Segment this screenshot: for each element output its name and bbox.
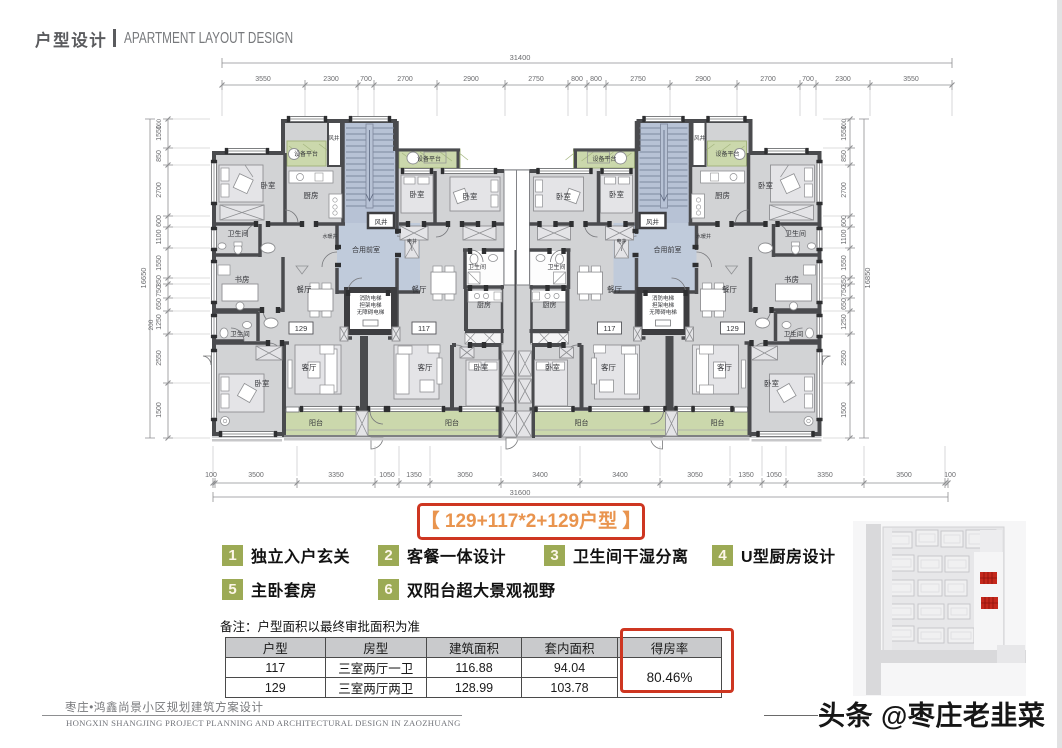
svg-text:卧室: 卧室 bbox=[255, 378, 270, 388]
svg-text:水暖井: 水暖井 bbox=[322, 233, 337, 240]
svg-text:700: 700 bbox=[802, 76, 814, 83]
svg-text:3400: 3400 bbox=[612, 472, 628, 479]
svg-text:1050: 1050 bbox=[379, 472, 395, 479]
svg-text:厨房: 厨房 bbox=[304, 190, 319, 200]
svg-text:1250: 1250 bbox=[156, 314, 163, 330]
svg-text:无障碍电梯: 无障碍电梯 bbox=[649, 308, 677, 316]
svg-text:117: 117 bbox=[604, 324, 616, 333]
svg-text:1500: 1500 bbox=[156, 402, 163, 418]
svg-text:卧室: 卧室 bbox=[758, 180, 773, 190]
svg-text:650: 650 bbox=[156, 298, 163, 310]
svg-text:2900: 2900 bbox=[463, 76, 479, 83]
svg-text:31600: 31600 bbox=[510, 488, 531, 497]
svg-text:800: 800 bbox=[571, 76, 583, 83]
svg-text:风井: 风井 bbox=[328, 134, 340, 142]
svg-text:100: 100 bbox=[842, 118, 848, 129]
svg-text:客厅: 客厅 bbox=[601, 362, 616, 372]
svg-text:600: 600 bbox=[841, 215, 848, 227]
svg-text:客厅: 客厅 bbox=[717, 362, 732, 372]
svg-text:2550: 2550 bbox=[841, 350, 848, 366]
svg-text:担架电梯: 担架电梯 bbox=[652, 301, 675, 309]
svg-text:117: 117 bbox=[418, 324, 430, 333]
svg-text:厨房: 厨房 bbox=[477, 300, 491, 309]
svg-text:3550: 3550 bbox=[903, 76, 919, 83]
svg-text:卧室: 卧室 bbox=[764, 378, 779, 388]
svg-text:1050: 1050 bbox=[766, 472, 782, 479]
svg-text:卧室: 卧室 bbox=[609, 189, 624, 199]
svg-text:850: 850 bbox=[841, 150, 848, 162]
svg-text:卧室: 卧室 bbox=[261, 180, 276, 190]
svg-text:3500: 3500 bbox=[248, 472, 264, 479]
svg-text:2700: 2700 bbox=[397, 76, 413, 83]
svg-text:设备平台: 设备平台 bbox=[715, 150, 739, 158]
svg-text:阳台: 阳台 bbox=[445, 418, 459, 427]
svg-text:750: 750 bbox=[841, 285, 848, 297]
svg-text:合用前室: 合用前室 bbox=[654, 245, 682, 254]
svg-text:1100: 1100 bbox=[841, 229, 848, 244]
svg-text:卫生间: 卫生间 bbox=[784, 329, 804, 338]
svg-text:卫生间: 卫生间 bbox=[468, 263, 486, 271]
svg-text:卫生间: 卫生间 bbox=[547, 263, 565, 271]
svg-text:2700: 2700 bbox=[841, 182, 848, 198]
svg-text:3500: 3500 bbox=[896, 472, 912, 479]
svg-text:电井: 电井 bbox=[616, 238, 626, 245]
svg-text:餐厅: 餐厅 bbox=[297, 285, 312, 294]
svg-text:2700: 2700 bbox=[760, 76, 776, 83]
svg-text:1100: 1100 bbox=[156, 229, 163, 244]
svg-text:31400: 31400 bbox=[510, 53, 531, 62]
svg-text:客厅: 客厅 bbox=[302, 362, 317, 372]
svg-text:129: 129 bbox=[726, 324, 739, 333]
svg-text:3400: 3400 bbox=[532, 472, 548, 479]
svg-text:卧室: 卧室 bbox=[545, 362, 560, 372]
svg-text:卧室: 卧室 bbox=[556, 191, 571, 201]
svg-text:1550: 1550 bbox=[841, 255, 848, 271]
svg-text:合用前室: 合用前室 bbox=[352, 245, 380, 254]
svg-text:800: 800 bbox=[590, 76, 602, 83]
svg-text:厨房: 厨房 bbox=[543, 300, 557, 309]
svg-text:电井: 电井 bbox=[407, 238, 417, 245]
svg-text:700: 700 bbox=[360, 76, 372, 83]
svg-text:担架电梯: 担架电梯 bbox=[359, 301, 382, 309]
svg-text:16650: 16650 bbox=[139, 268, 148, 289]
svg-text:2300: 2300 bbox=[835, 76, 851, 83]
svg-text:阳台: 阳台 bbox=[309, 418, 323, 427]
svg-text:卫生间: 卫生间 bbox=[228, 229, 249, 238]
svg-text:129: 129 bbox=[295, 324, 308, 333]
svg-text:1350: 1350 bbox=[406, 472, 422, 479]
svg-text:1250: 1250 bbox=[841, 314, 848, 330]
svg-text:750: 750 bbox=[156, 285, 163, 297]
svg-text:风井: 风井 bbox=[646, 217, 660, 226]
svg-text:阳台: 阳台 bbox=[711, 418, 725, 427]
svg-text:600: 600 bbox=[156, 215, 163, 227]
svg-text:2750: 2750 bbox=[528, 76, 544, 83]
svg-text:650: 650 bbox=[841, 298, 848, 310]
svg-text:餐厅: 餐厅 bbox=[607, 285, 622, 294]
svg-text:客厅: 客厅 bbox=[418, 362, 433, 372]
svg-text:餐厅: 餐厅 bbox=[412, 285, 427, 294]
svg-text:350: 350 bbox=[156, 275, 163, 287]
svg-text:1350: 1350 bbox=[738, 472, 754, 479]
svg-text:2900: 2900 bbox=[695, 76, 711, 83]
svg-text:无障碍电梯: 无障碍电梯 bbox=[357, 308, 385, 316]
svg-text:3550: 3550 bbox=[255, 76, 271, 83]
svg-text:风井: 风井 bbox=[694, 134, 706, 142]
svg-text:2700: 2700 bbox=[156, 182, 163, 198]
svg-text:厨房: 厨房 bbox=[715, 190, 730, 200]
svg-text:卧室: 卧室 bbox=[410, 189, 425, 199]
svg-text:3050: 3050 bbox=[687, 472, 703, 479]
svg-text:书房: 书房 bbox=[235, 274, 250, 284]
svg-text:2300: 2300 bbox=[323, 76, 339, 83]
svg-text:书房: 书房 bbox=[784, 274, 799, 284]
svg-text:100: 100 bbox=[944, 472, 956, 479]
svg-text:水暖井: 水暖井 bbox=[696, 233, 711, 240]
svg-text:阳台: 阳台 bbox=[575, 418, 589, 427]
svg-text:卧室: 卧室 bbox=[474, 362, 489, 372]
svg-text:卫生间: 卫生间 bbox=[785, 229, 806, 238]
svg-text:1550: 1550 bbox=[156, 255, 163, 271]
svg-text:2550: 2550 bbox=[156, 350, 163, 366]
svg-text:餐厅: 餐厅 bbox=[722, 285, 737, 294]
svg-text:2750: 2750 bbox=[630, 76, 646, 83]
svg-text:16850: 16850 bbox=[863, 268, 872, 289]
svg-text:3350: 3350 bbox=[817, 472, 833, 479]
svg-text:1500: 1500 bbox=[841, 402, 848, 418]
svg-text:100: 100 bbox=[157, 118, 163, 129]
svg-text:设备平台: 设备平台 bbox=[417, 155, 441, 163]
svg-text:100: 100 bbox=[205, 472, 217, 479]
svg-text:消防电梯: 消防电梯 bbox=[652, 294, 675, 302]
svg-text:3050: 3050 bbox=[457, 472, 473, 479]
svg-text:卫生间: 卫生间 bbox=[230, 329, 250, 338]
svg-text:350: 350 bbox=[841, 275, 848, 287]
svg-text:200: 200 bbox=[148, 319, 155, 330]
svg-text:设备平台: 设备平台 bbox=[592, 155, 616, 163]
svg-text:风井: 风井 bbox=[375, 217, 389, 226]
svg-text:卧室: 卧室 bbox=[463, 191, 478, 201]
svg-text:设备平台: 设备平台 bbox=[294, 150, 318, 158]
svg-text:3350: 3350 bbox=[328, 472, 344, 479]
svg-text:850: 850 bbox=[156, 150, 163, 162]
svg-text:消防电梯: 消防电梯 bbox=[359, 294, 382, 302]
